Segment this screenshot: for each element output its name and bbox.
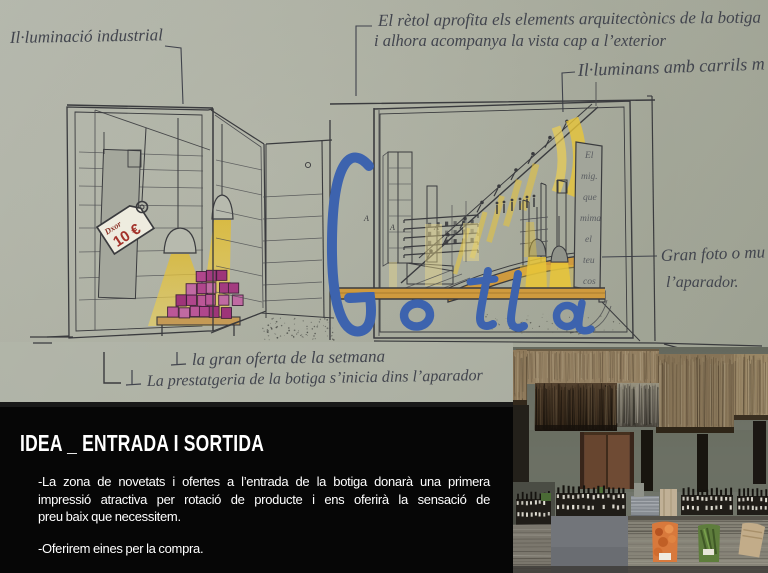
svg-text:A: A (389, 223, 395, 232)
svg-text:i alhora acompanya la vista ca: i alhora acompanya la vista cap a l’exte… (374, 31, 666, 50)
svg-text:cos: cos (583, 277, 596, 287)
svg-text:que: que (583, 193, 597, 203)
svg-text:El: El (584, 151, 594, 161)
svg-text:El rètol aprofita els elements: El rètol aprofita els elements arquitect… (377, 8, 761, 30)
svg-text:Il·luminació industrial: Il·luminació industrial (9, 25, 164, 47)
svg-text:Gran foto o mu: Gran foto o mu (660, 242, 765, 265)
svg-text:la gran oferta de la setmana: la gran oferta de la setmana (192, 347, 385, 369)
svg-text:A: A (363, 214, 369, 223)
svg-text:l’aparador.: l’aparador. (666, 274, 738, 291)
svg-text:el: el (585, 235, 592, 245)
svg-text:mima: mima (580, 214, 601, 224)
svg-text:mig.: mig. (581, 172, 598, 182)
svg-text:teu: teu (583, 256, 595, 266)
